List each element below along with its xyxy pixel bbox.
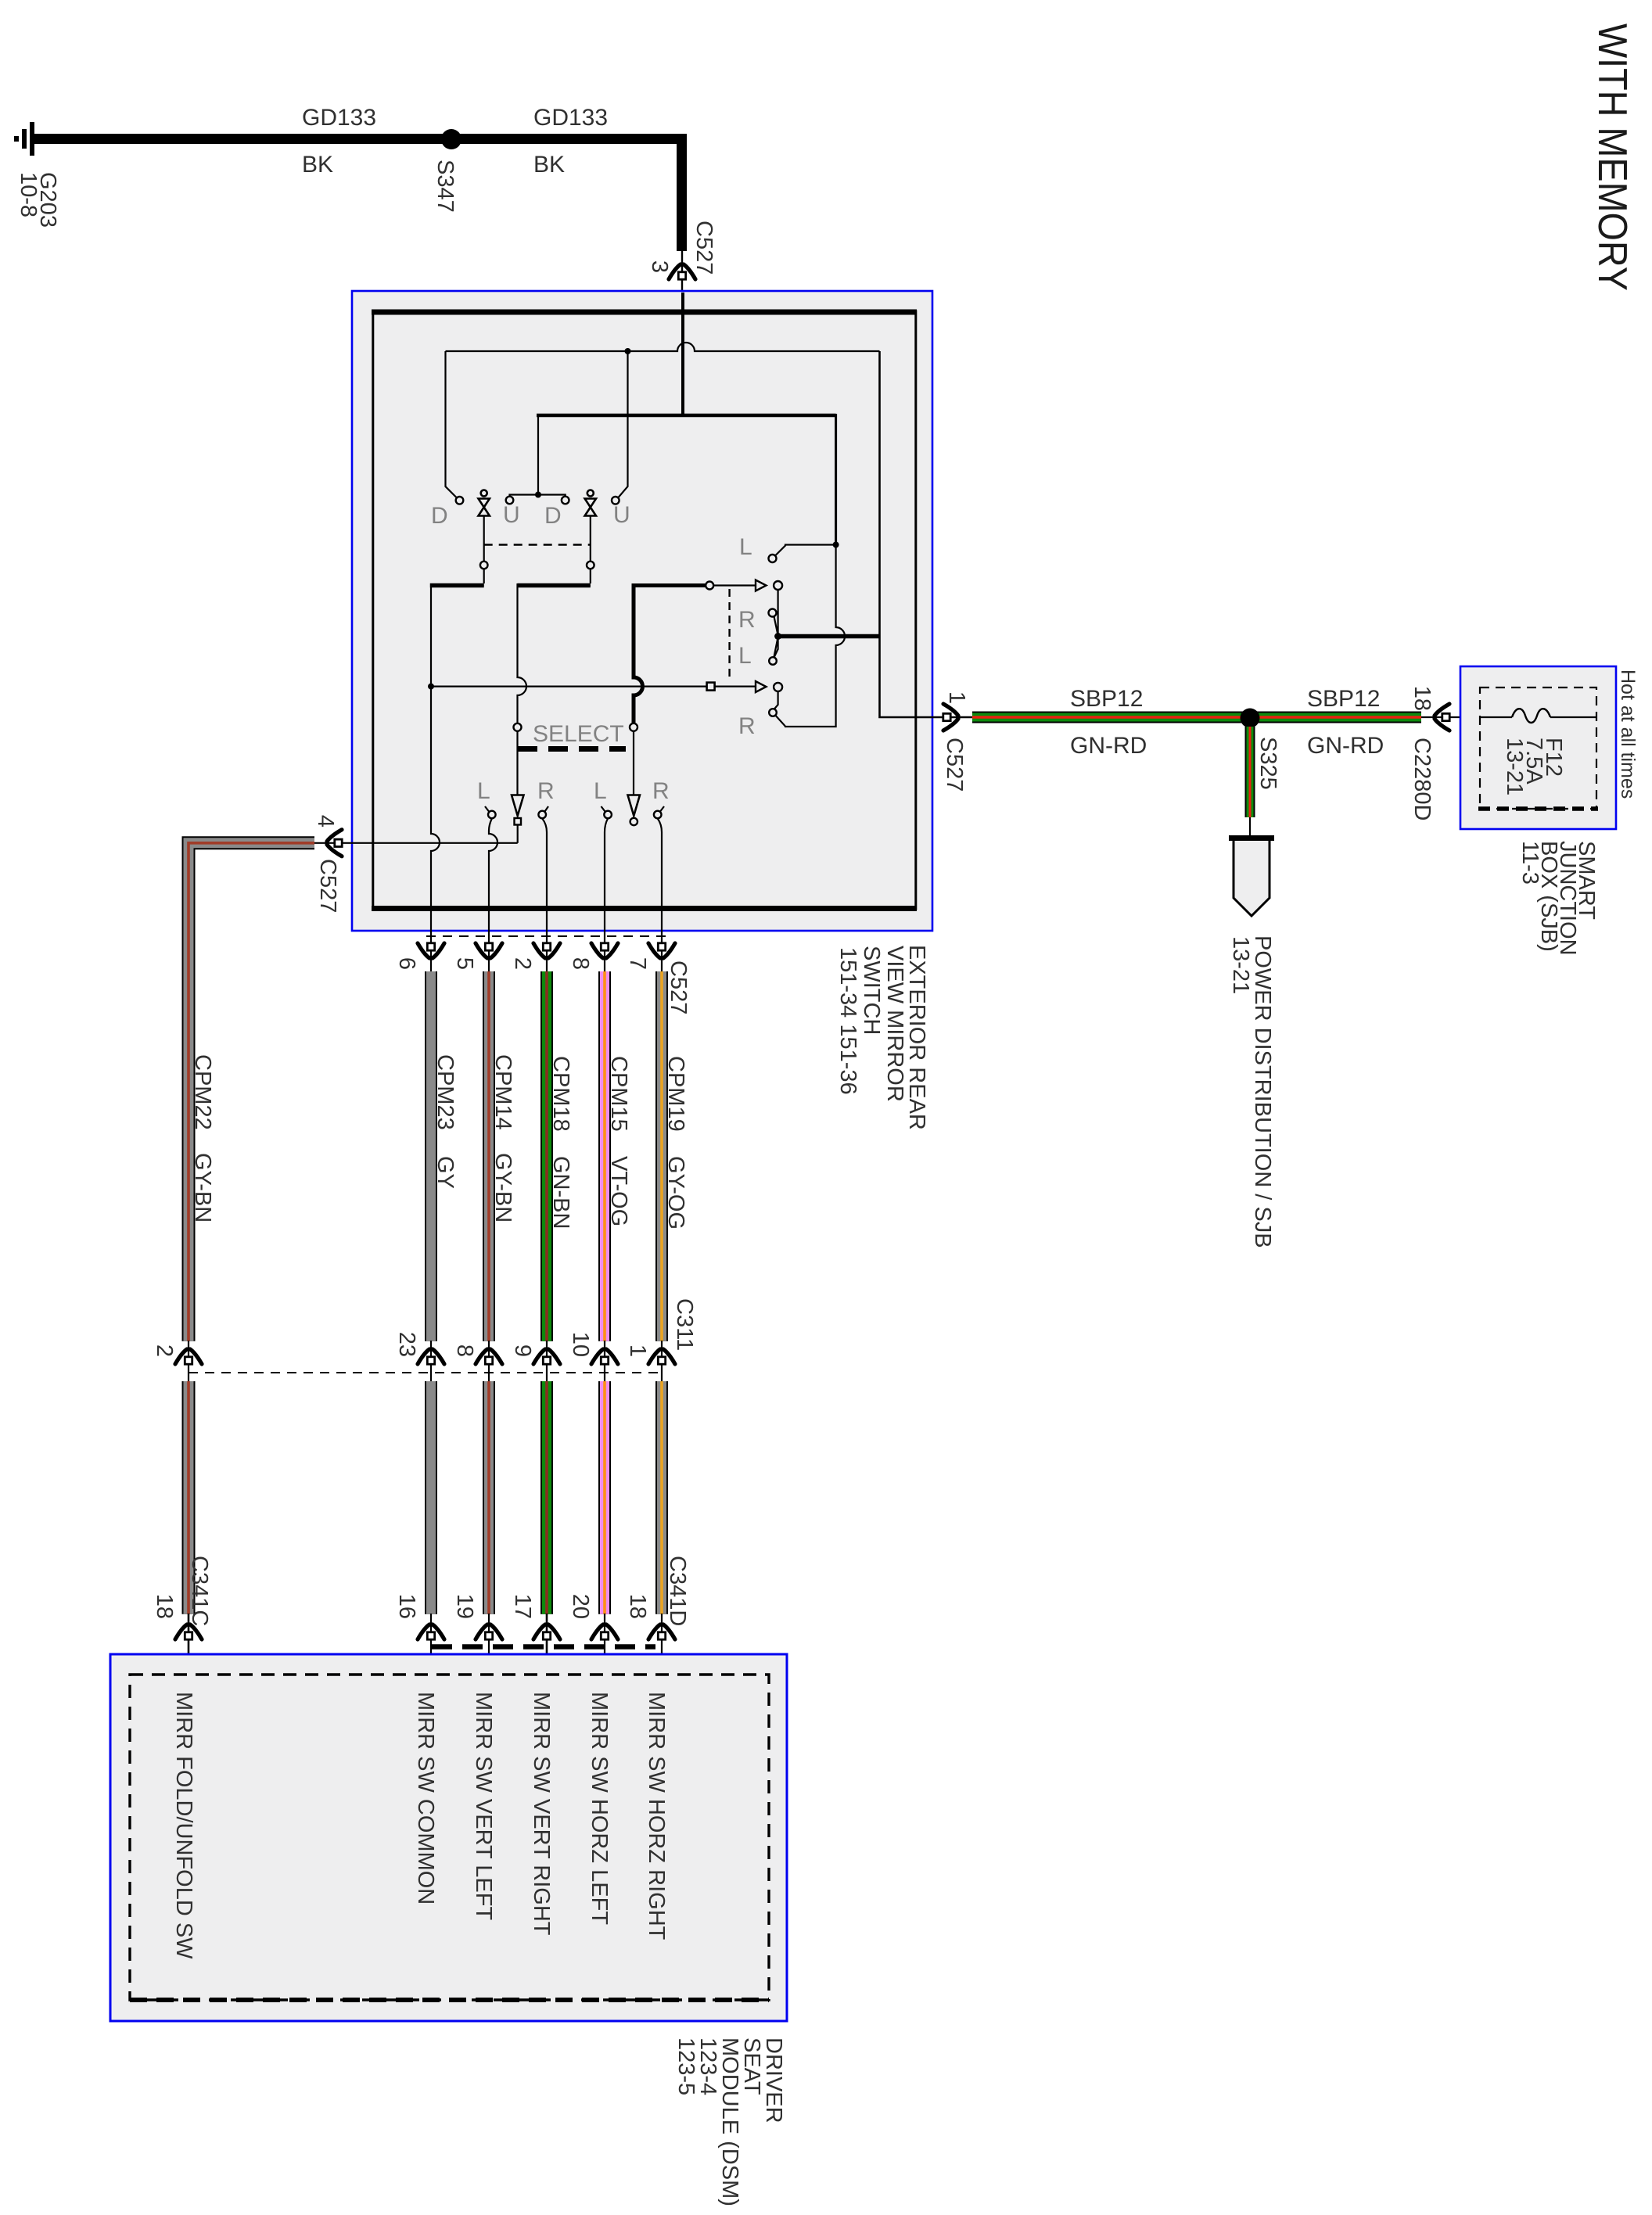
svg-text:C341D: C341D <box>665 1556 690 1626</box>
svg-text:CPM23: CPM23 <box>433 1054 458 1130</box>
svg-text:3: 3 <box>647 260 672 273</box>
svg-text:19: 19 <box>452 1594 477 1619</box>
svg-text:GY-OG: GY-OG <box>663 1156 688 1230</box>
svg-text:11-3: 11-3 <box>1517 841 1542 885</box>
svg-text:C527: C527 <box>315 859 340 913</box>
svg-text:CPM22: CPM22 <box>190 1054 215 1130</box>
svg-text:U: U <box>613 502 630 528</box>
svg-text:8: 8 <box>452 1344 477 1357</box>
svg-text:23: 23 <box>394 1332 419 1357</box>
svg-text:GY-BN: GY-BN <box>490 1153 515 1222</box>
svg-text:MIRR FOLD/UNFOLD SW: MIRR FOLD/UNFOLD SW <box>171 1692 196 1959</box>
svg-text:18: 18 <box>1410 686 1435 711</box>
svg-text:C527: C527 <box>942 738 967 792</box>
svg-text:GD133: GD133 <box>302 105 376 131</box>
svg-text:13-21: 13-21 <box>1502 738 1527 795</box>
svg-text:C311: C311 <box>672 1298 697 1351</box>
svg-text:S325: S325 <box>1255 737 1280 790</box>
svg-text:SBP12: SBP12 <box>1307 686 1380 712</box>
svg-text:L: L <box>477 778 490 804</box>
svg-text:BK: BK <box>302 152 333 178</box>
svg-text:7: 7 <box>625 957 650 970</box>
svg-text:R: R <box>652 778 670 804</box>
svg-text:2: 2 <box>510 957 535 970</box>
svg-text:16: 16 <box>394 1594 419 1619</box>
svg-text:MIRR SW HORZ RIGHT: MIRR SW HORZ RIGHT <box>644 1692 669 1940</box>
svg-text:SWITCH: SWITCH <box>859 946 884 1035</box>
svg-text:GD133: GD133 <box>533 105 608 131</box>
svg-text:9: 9 <box>510 1344 535 1357</box>
svg-text:R: R <box>738 713 756 739</box>
svg-text:Hot at all times: Hot at all times <box>1617 670 1639 799</box>
svg-text:U: U <box>503 502 520 528</box>
svg-text:13-21: 13-21 <box>1228 936 1253 994</box>
svg-text:D: D <box>544 503 562 529</box>
svg-text:GN-RD: GN-RD <box>1307 733 1384 759</box>
svg-text:C527: C527 <box>666 960 691 1014</box>
svg-text:SBP12: SBP12 <box>1070 686 1143 712</box>
svg-text:MIRR SW HORZ LEFT: MIRR SW HORZ LEFT <box>587 1692 612 1925</box>
svg-text:MIRR SW COMMON: MIRR SW COMMON <box>413 1692 438 1904</box>
svg-text:D: D <box>431 503 448 529</box>
svg-text:L: L <box>739 534 752 560</box>
svg-text:L: L <box>594 778 607 804</box>
svg-text:L: L <box>738 643 752 669</box>
svg-text:2: 2 <box>152 1344 177 1357</box>
svg-text:VT-OG: VT-OG <box>606 1156 631 1226</box>
svg-text:20: 20 <box>568 1594 593 1619</box>
svg-text:MIRR SW VERT RIGHT: MIRR SW VERT RIGHT <box>529 1692 554 1936</box>
svg-text:C341C: C341C <box>187 1556 212 1626</box>
svg-text:GN-RD: GN-RD <box>1070 733 1147 759</box>
svg-text:GY-BN: GY-BN <box>190 1153 215 1222</box>
svg-text:17: 17 <box>510 1594 535 1619</box>
svg-text:10-8: 10-8 <box>16 172 41 217</box>
svg-text:10: 10 <box>568 1332 593 1357</box>
svg-text:4: 4 <box>313 815 338 827</box>
svg-text:C527: C527 <box>691 221 716 275</box>
svg-text:MIRR SW VERT LEFT: MIRR SW VERT LEFT <box>471 1692 496 1920</box>
svg-text:R: R <box>738 607 756 633</box>
svg-text:CPM18: CPM18 <box>548 1056 573 1132</box>
svg-text:GN-BN: GN-BN <box>548 1156 573 1229</box>
svg-text:SELECT: SELECT <box>533 721 624 747</box>
svg-text:123-5: 123-5 <box>673 2037 699 2095</box>
svg-text:1: 1 <box>625 1344 650 1357</box>
svg-text:6: 6 <box>394 957 419 970</box>
svg-text:BK: BK <box>533 152 565 178</box>
svg-text:CPM14: CPM14 <box>490 1054 515 1130</box>
svg-text:C2280D: C2280D <box>1410 738 1435 820</box>
svg-text:GY: GY <box>433 1156 458 1189</box>
svg-text:CPM15: CPM15 <box>606 1056 631 1132</box>
svg-text:18: 18 <box>625 1594 650 1619</box>
svg-text:5: 5 <box>452 957 477 970</box>
svg-text:WITH MEMORY: WITH MEMORY <box>1589 23 1635 291</box>
svg-text:S347: S347 <box>433 160 458 213</box>
svg-text:151-34 151-36: 151-34 151-36 <box>835 947 860 1095</box>
svg-text:18: 18 <box>152 1594 177 1619</box>
svg-text:1: 1 <box>944 691 969 704</box>
svg-text:8: 8 <box>568 957 593 970</box>
svg-text:R: R <box>537 778 555 804</box>
svg-text:CPM19: CPM19 <box>663 1056 688 1132</box>
svg-text:VIEW MIRROR: VIEW MIRROR <box>882 946 907 1102</box>
